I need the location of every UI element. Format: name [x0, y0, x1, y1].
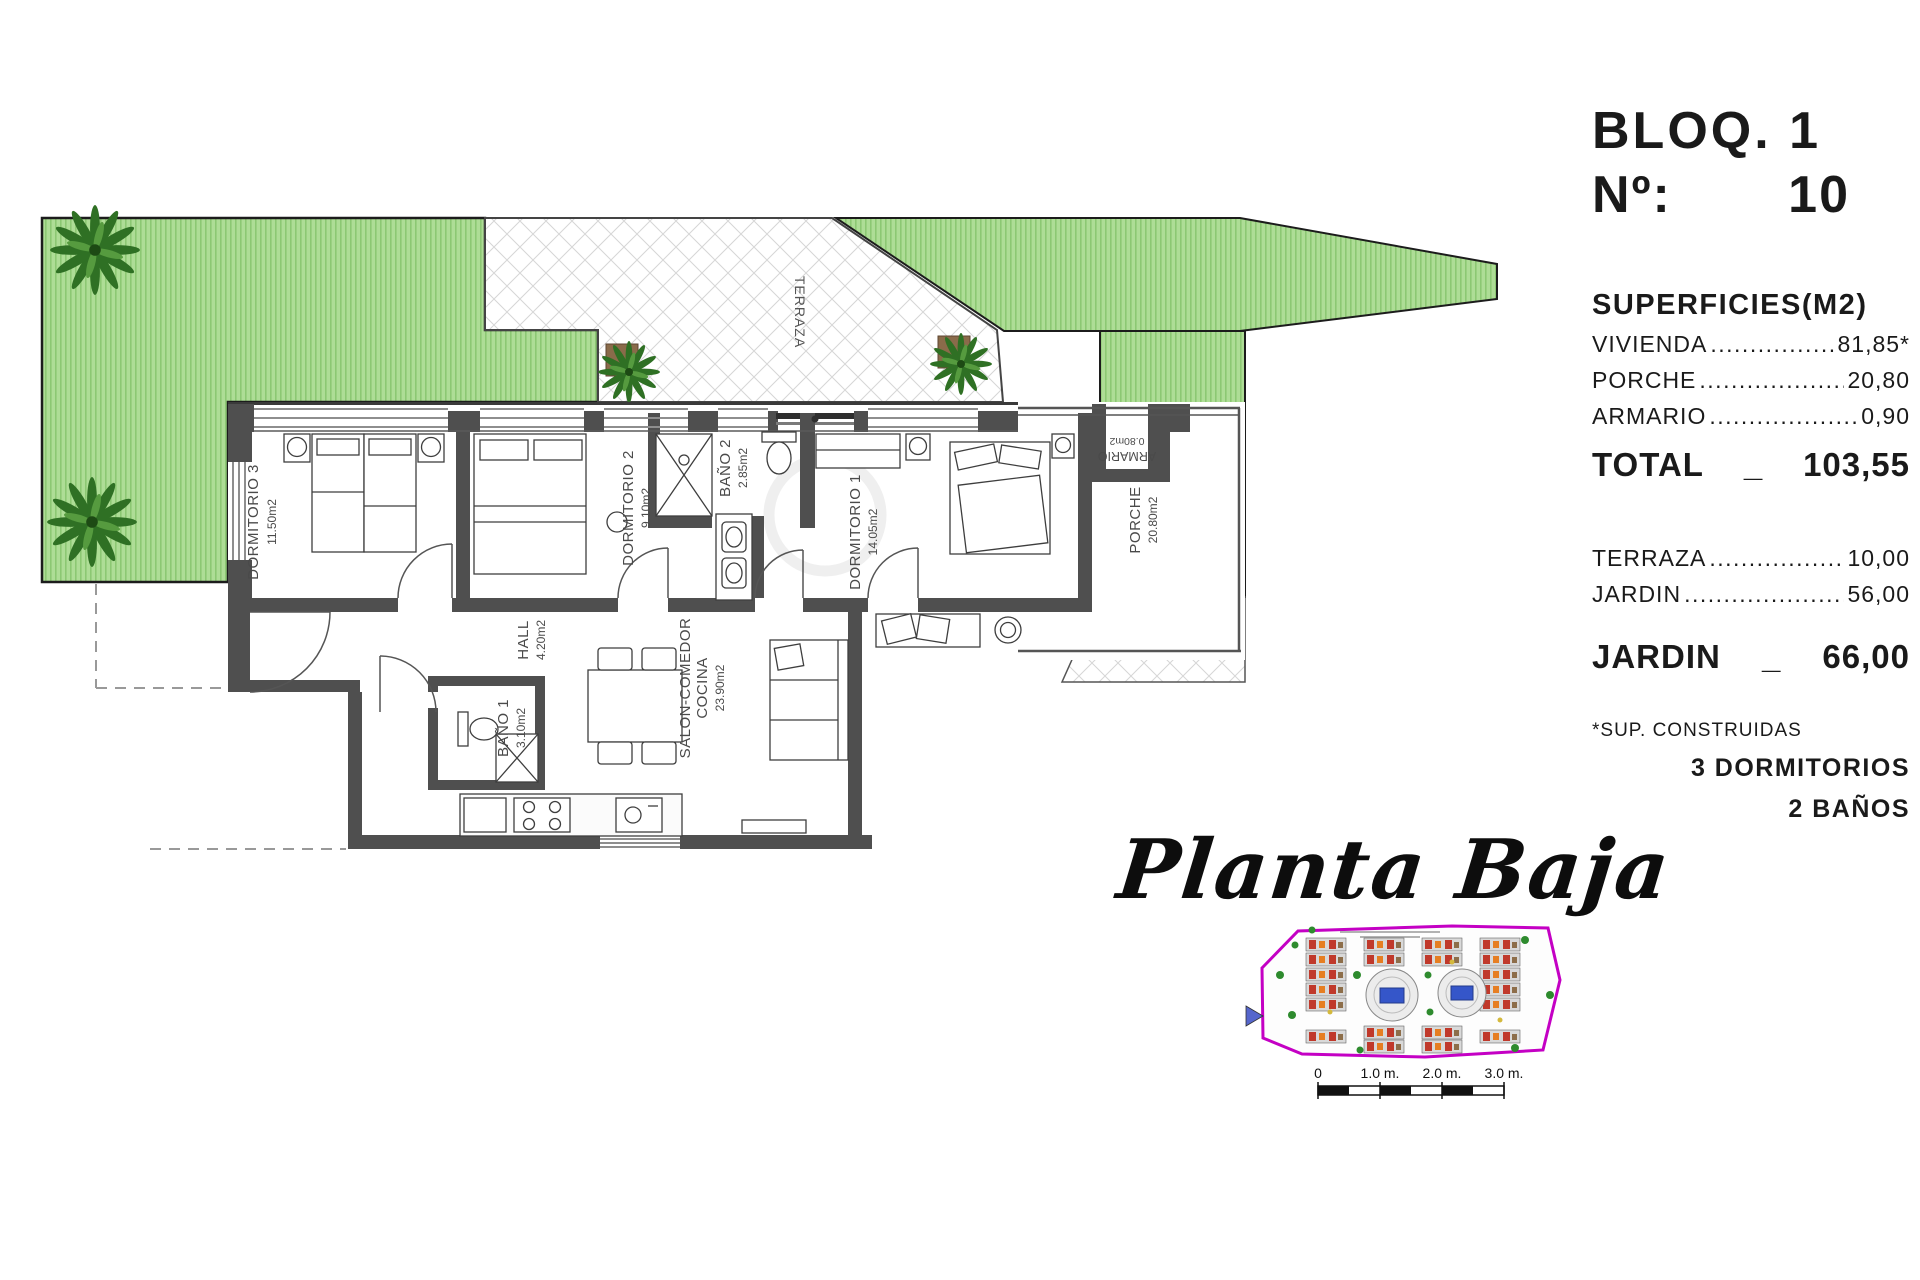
room-area-armario: 0.80m2	[1109, 435, 1144, 447]
dotted-leader: ........................................…	[1710, 331, 1834, 358]
jardin-total-row: JARDIN _ 66,00	[1592, 638, 1910, 676]
bathrooms-count: 2 BAÑOS	[1592, 795, 1910, 824]
surface-label: PORCHE	[1592, 367, 1696, 394]
sliding-door-handle-icon	[812, 416, 819, 423]
total-separator: _	[1704, 446, 1803, 484]
surface-row-porche: PORCHE .................................…	[1592, 367, 1910, 394]
footnote: *SUP. CONSTRUIDAS	[1592, 720, 1910, 742]
minimap-location-arrow-icon	[1246, 1006, 1263, 1026]
surface-value: 0,90	[1861, 403, 1910, 430]
scale-label-2: 2.0 m.	[1423, 1065, 1462, 1081]
room-area-hall: 4.20m2	[534, 620, 548, 660]
room-area-porche: 20.80m2	[1146, 496, 1160, 543]
room-label-salon: SALON-COMEDOR	[677, 618, 694, 759]
surface-label: ARMARIO	[1592, 403, 1706, 430]
room-label-dormitorio-2: DORMITORIO 2	[620, 450, 637, 566]
room-label-dormitorio-1: DORMITORIO 1	[847, 474, 864, 590]
outdoor-value: 10,00	[1847, 545, 1910, 572]
outdoor-label: JARDIN	[1592, 581, 1681, 608]
room-area-bano-1: 3.10m2	[514, 708, 528, 748]
room-label-dormitorio-3: DORMITORIO 3	[245, 464, 262, 580]
dotted-leader: ........................................…	[1709, 403, 1858, 430]
info-panel: BLOQ. 1 Nº: 10 SUPERFICIES(M2) VIVIENDA …	[1592, 104, 1910, 824]
outdoor-label: TERRAZA	[1592, 545, 1706, 572]
room-label-bano-2: BAÑO 2	[717, 439, 734, 497]
jardin-label: JARDIN	[1592, 638, 1721, 676]
unit-number-value: 10	[1788, 165, 1850, 225]
dotted-leader: ........................................…	[1709, 545, 1844, 572]
outdoor-row-terraza: TERRAZA ................................…	[1592, 545, 1910, 572]
room-label-salon-2: COCINA	[694, 657, 711, 718]
surface-row-armario: ARMARIO ................................…	[1592, 403, 1910, 430]
room-label-hall: HALL	[515, 620, 532, 660]
room-area-dormitorio-1: 14.05m2	[866, 508, 880, 555]
total-value: 103,55	[1803, 446, 1910, 484]
jardin-value: 66,00	[1822, 638, 1910, 676]
room-area-dormitorio-3: 11.50m2	[265, 499, 279, 545]
room-label-armario: ARMARIO	[1098, 449, 1157, 463]
surface-value: 81,85*	[1837, 331, 1910, 358]
scale-label-0: 0	[1314, 1065, 1322, 1081]
outdoor-row-jardin: JARDIN .................................…	[1592, 581, 1910, 608]
dotted-leader: ........................................…	[1699, 367, 1844, 394]
unit-number-label: Nº:	[1592, 165, 1672, 225]
scale-bar: 0 1.0 m. 2.0 m. 3.0 m.	[1314, 1065, 1523, 1099]
room-area-bano-2: 2.85m2	[736, 448, 750, 488]
surface-value: 20,80	[1847, 367, 1910, 394]
superficies-title: SUPERFICIES(M2)	[1592, 289, 1910, 322]
block-title: BLOQ. 1	[1592, 104, 1910, 159]
site-plan-minimap	[1246, 926, 1560, 1057]
outdoor-value: 56,00	[1847, 581, 1910, 608]
surface-label: VIVIENDA	[1592, 331, 1707, 358]
scale-label-1: 1.0 m.	[1361, 1065, 1400, 1081]
bedrooms-count: 3 DORMITORIOS	[1592, 754, 1910, 783]
room-label-porche: PORCHE	[1127, 486, 1144, 553]
unit-number-row: Nº: 10	[1592, 165, 1850, 225]
surface-row-vivienda: VIVIENDA ...............................…	[1592, 331, 1910, 358]
room-label-terraza: TERRAZA	[792, 276, 808, 348]
room-label-bano-1: BAÑO 1	[495, 699, 512, 757]
floor-plan-sheet: DORMITORIO 3 11.50m2 DORMITORIO 2 9.10m2…	[0, 0, 1920, 1280]
scale-label-3: 3.0 m.	[1485, 1065, 1524, 1081]
total-row: TOTAL _ 103,55	[1592, 446, 1910, 484]
floor-title: Planta Baja	[1113, 822, 1675, 918]
room-area-salon: 23.90m2	[713, 664, 727, 711]
total-label: TOTAL	[1592, 446, 1704, 484]
room-area-dormitorio-2: 9.10m2	[639, 488, 653, 528]
jardin-separator: _	[1721, 638, 1823, 676]
dotted-leader: ........................................…	[1684, 581, 1844, 608]
